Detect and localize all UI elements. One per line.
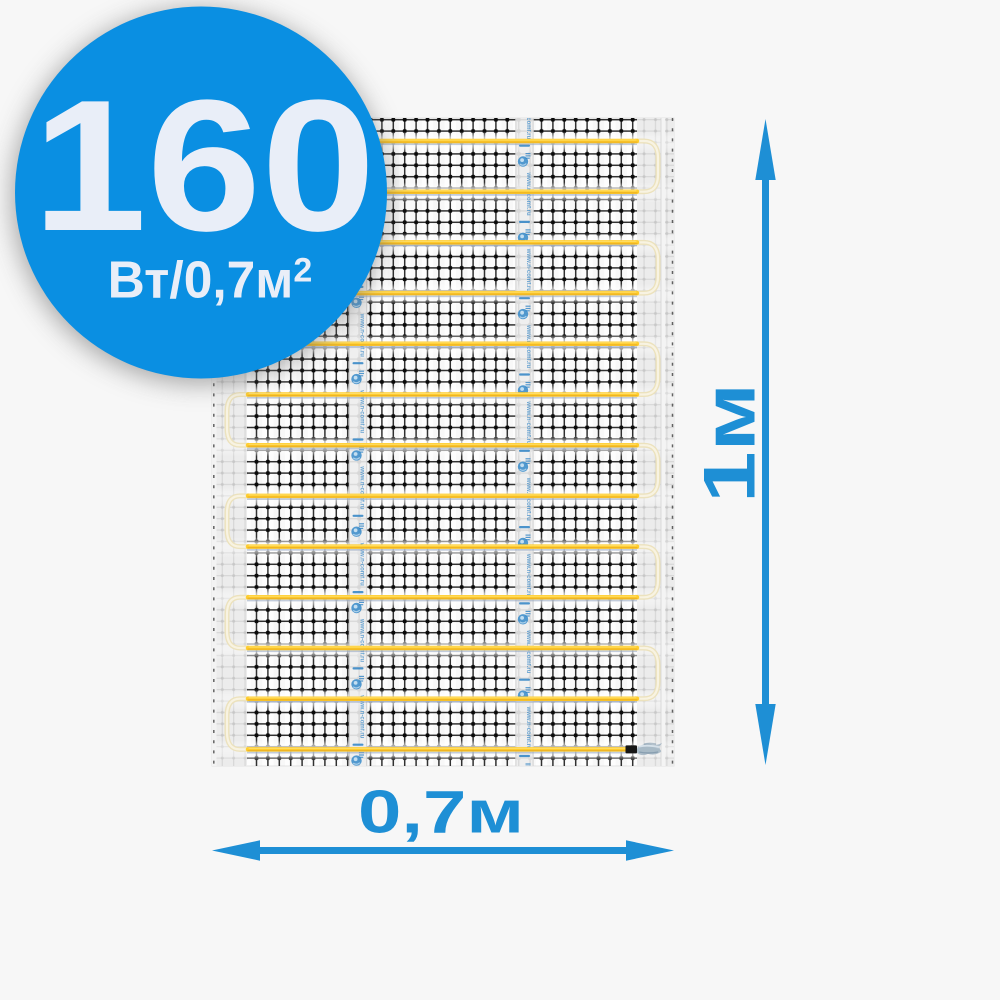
svg-text:1м: 1м (688, 383, 770, 503)
svg-text:160: 160 (32, 61, 375, 270)
svg-text:0,7м: 0,7м (358, 778, 524, 845)
svg-text:Вт/0,7м2: Вт/0,7м2 (108, 251, 313, 309)
